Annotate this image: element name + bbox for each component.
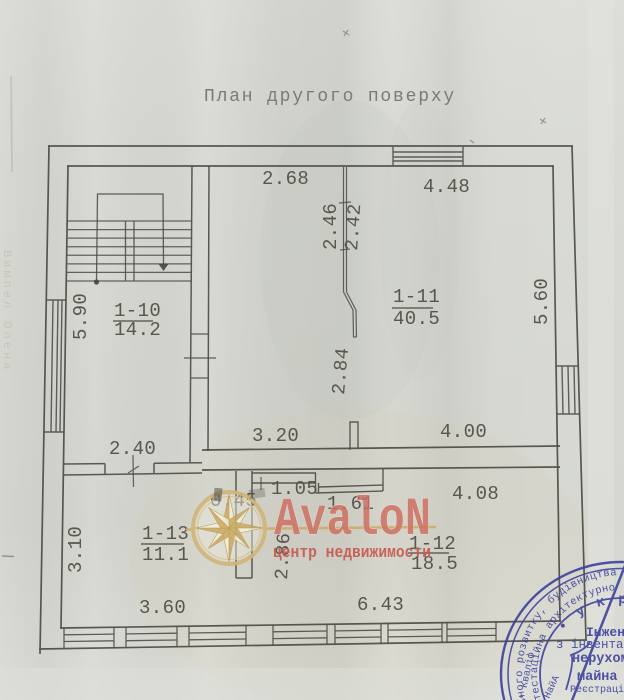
svg-text:центр недвижимости: центр недвижимости <box>273 544 431 563</box>
svg-text:1-13: 1-13 <box>142 523 189 545</box>
svg-text:1-11: 1-11 <box>393 286 440 308</box>
svg-text:4.00: 4.00 <box>440 421 487 443</box>
svg-text:4.48: 4.48 <box>423 176 470 198</box>
svg-text:6.43: 6.43 <box>357 594 404 616</box>
svg-text:3.20: 3.20 <box>252 425 299 447</box>
svg-text:5.90: 5.90 <box>70 293 92 340</box>
svg-text:14.2: 14.2 <box>114 319 161 341</box>
svg-text:з інвентариза: з інвентариза <box>556 638 624 652</box>
svg-text:2.84: 2.84 <box>328 347 354 396</box>
svg-text:План другого поверху: План другого поверху <box>204 87 456 107</box>
svg-text:3.10: 3.10 <box>65 526 87 573</box>
svg-text:11.1: 11.1 <box>142 544 189 566</box>
svg-text:нерухомог: нерухомог <box>572 652 624 667</box>
svg-text:2.68: 2.68 <box>262 168 309 190</box>
svg-text:4.08: 4.08 <box>452 483 499 505</box>
svg-text:40.5: 40.5 <box>393 308 440 330</box>
svg-text:Вимпел Олена: Вимпел Олена <box>0 250 14 372</box>
svg-text:2.42: 2.42 <box>341 203 366 252</box>
svg-text:5.60: 5.60 <box>531 278 553 325</box>
svg-text:2.40: 2.40 <box>109 438 156 460</box>
svg-text:3.60: 3.60 <box>139 597 186 619</box>
svg-text:2.46: 2.46 <box>320 203 342 250</box>
svg-text:AvaloN: AvaloN <box>274 490 431 551</box>
